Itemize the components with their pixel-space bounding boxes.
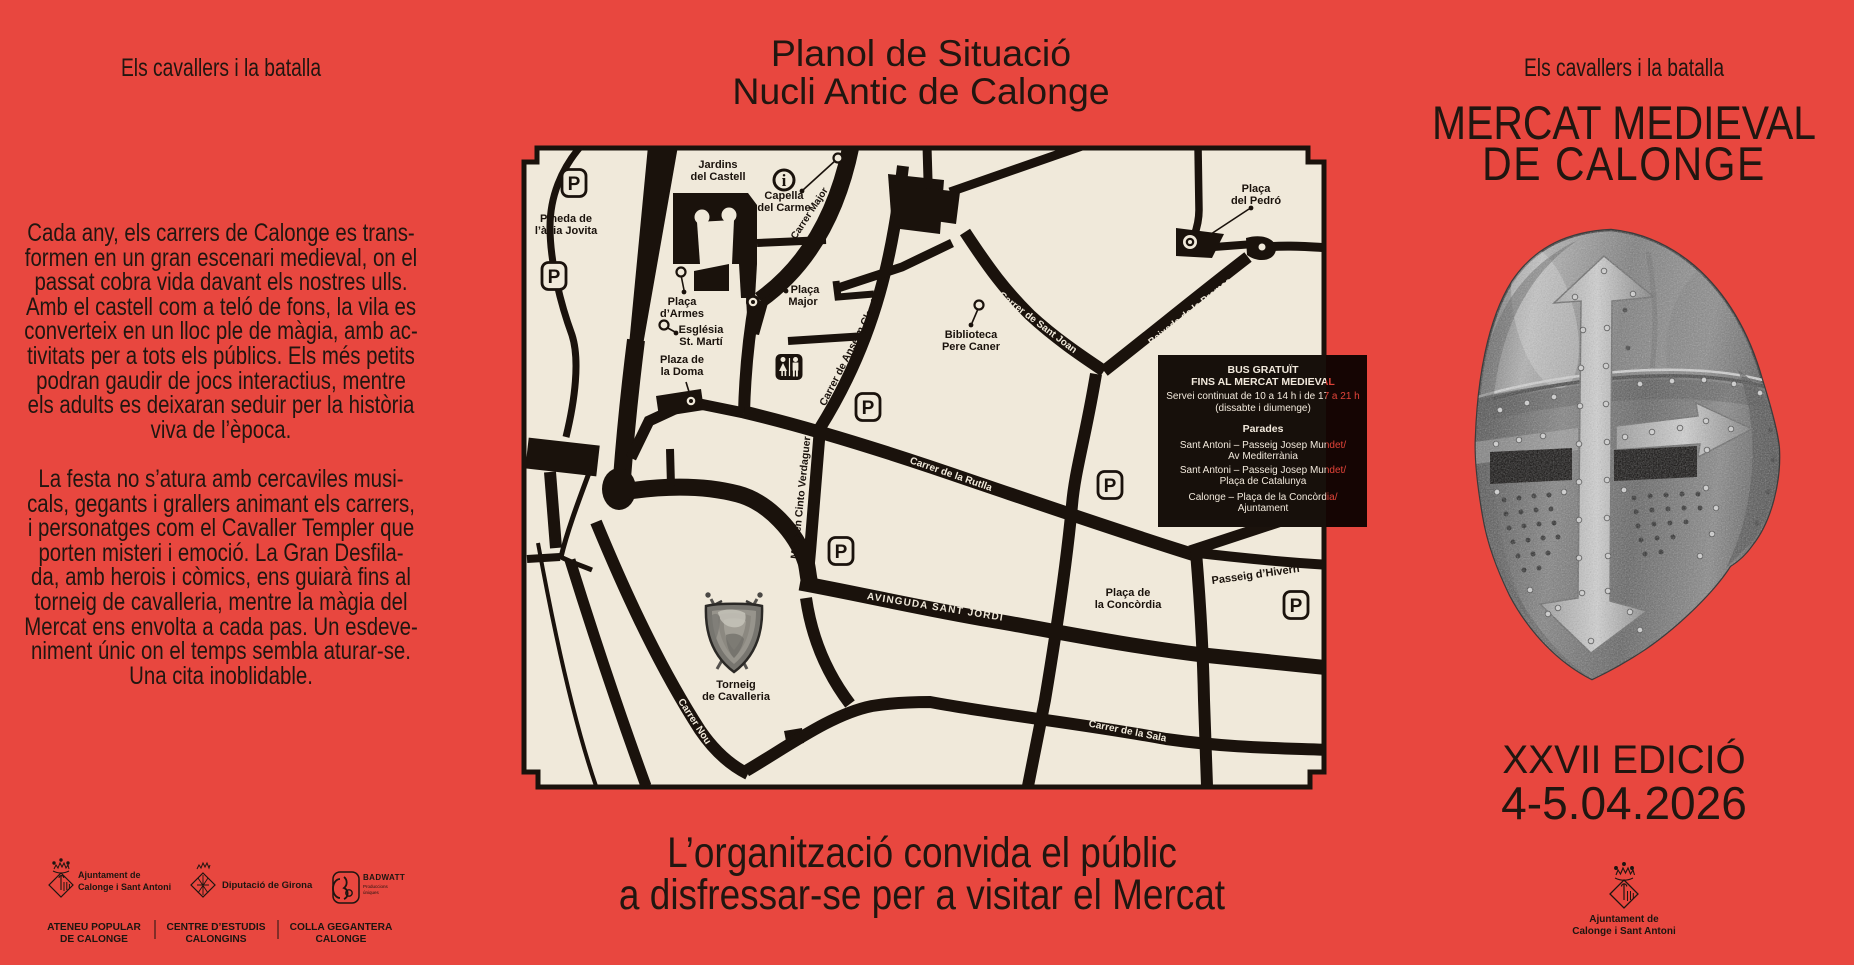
svg-text:Església: Església — [679, 324, 725, 336]
svg-text:Plaza de: Plaza de — [660, 354, 704, 366]
svg-text:P: P — [1290, 596, 1303, 617]
svg-text:P: P — [862, 398, 875, 419]
svg-text:la Doma: la Doma — [661, 366, 705, 378]
svg-text:i: i — [782, 171, 787, 190]
svg-text:CALONGINS: CALONGINS — [185, 934, 246, 945]
svg-text:la Concòrdia: la Concòrdia — [1095, 599, 1163, 611]
svg-text:de Cavalleria: de Cavalleria — [702, 691, 771, 703]
svg-text:Ajuntament de: Ajuntament de — [78, 870, 141, 880]
svg-text:del Carme: del Carme — [757, 202, 810, 214]
svg-text:Sant Antoni – Passeig Josep Mu: Sant Antoni – Passeig Josep Mundet/ — [1180, 440, 1346, 451]
svg-text:Plaça: Plaça — [1242, 183, 1272, 195]
svg-text:Calonge i Sant Antoni: Calonge i Sant Antoni — [1572, 926, 1676, 937]
svg-text:d’Armes: d’Armes — [660, 308, 704, 320]
svg-text:DE CALONGE: DE CALONGE — [60, 934, 128, 945]
svg-text:CALONGE: CALONGE — [316, 934, 367, 945]
svg-text:COLLA GEGANTERA: COLLA GEGANTERA — [290, 922, 393, 933]
svg-text:del Pedró: del Pedró — [1231, 195, 1281, 207]
svg-text:Calonge i Sant Antoni: Calonge i Sant Antoni — [78, 882, 171, 892]
svg-text:l’àvia Jovita: l’àvia Jovita — [535, 225, 598, 237]
svg-text:Parades: Parades — [1243, 423, 1284, 435]
svg-text:Ajuntament: Ajuntament — [1238, 503, 1289, 514]
svg-text:Torneig: Torneig — [716, 679, 756, 691]
svg-text:Plaça: Plaça — [668, 296, 698, 308]
svg-text:Ajuntament de: Ajuntament de — [1589, 914, 1659, 925]
svg-text:Av Mediterrània: Av Mediterrània — [1228, 451, 1298, 462]
svg-text:Major: Major — [788, 296, 818, 308]
svg-text:Capella: Capella — [764, 190, 804, 202]
svg-text:Calonge – Plaça de la Concòrdi: Calonge – Plaça de la Concòrdia/ — [1189, 492, 1338, 503]
svg-text:P: P — [568, 174, 581, 195]
svg-text:del Castell: del Castell — [690, 171, 745, 183]
svg-text:(dissabte i diumenge): (dissabte i diumenge) — [1215, 403, 1311, 414]
svg-text:Pere Caner: Pere Caner — [942, 341, 1001, 353]
svg-text:FINS AL MERCAT MEDIEVAL: FINS AL MERCAT MEDIEVAL — [1191, 376, 1335, 388]
svg-text:Biblioteca: Biblioteca — [945, 329, 998, 341]
svg-text:Jardins: Jardins — [698, 159, 737, 171]
svg-text:P: P — [1104, 476, 1117, 497]
svg-text:BADWATT: BADWATT — [363, 873, 405, 882]
svg-text:ATENEU POPULAR: ATENEU POPULAR — [47, 922, 141, 933]
svg-text:Plaça de Catalunya: Plaça de Catalunya — [1220, 476, 1307, 487]
svg-text:Sant Antoni – Passeig Josep Mu: Sant Antoni – Passeig Josep Mundet/ — [1180, 465, 1346, 476]
svg-text:Plaça: Plaça — [791, 284, 821, 296]
svg-text:úniques: úniques — [363, 890, 380, 895]
svg-text:St. Martí: St. Martí — [679, 336, 723, 348]
svg-text:Plaça de: Plaça de — [1106, 587, 1151, 599]
svg-text:P: P — [548, 267, 561, 288]
svg-text:Pineda de: Pineda de — [540, 213, 592, 225]
svg-text:BUS GRATUÏT: BUS GRATUÏT — [1228, 363, 1300, 376]
svg-text:Produccions: Produccions — [363, 884, 389, 889]
svg-text:Diputació de Girona: Diputació de Girona — [222, 880, 313, 891]
svg-text:P: P — [835, 542, 848, 563]
svg-text:CENTRE D’ESTUDIS: CENTRE D’ESTUDIS — [166, 922, 265, 933]
